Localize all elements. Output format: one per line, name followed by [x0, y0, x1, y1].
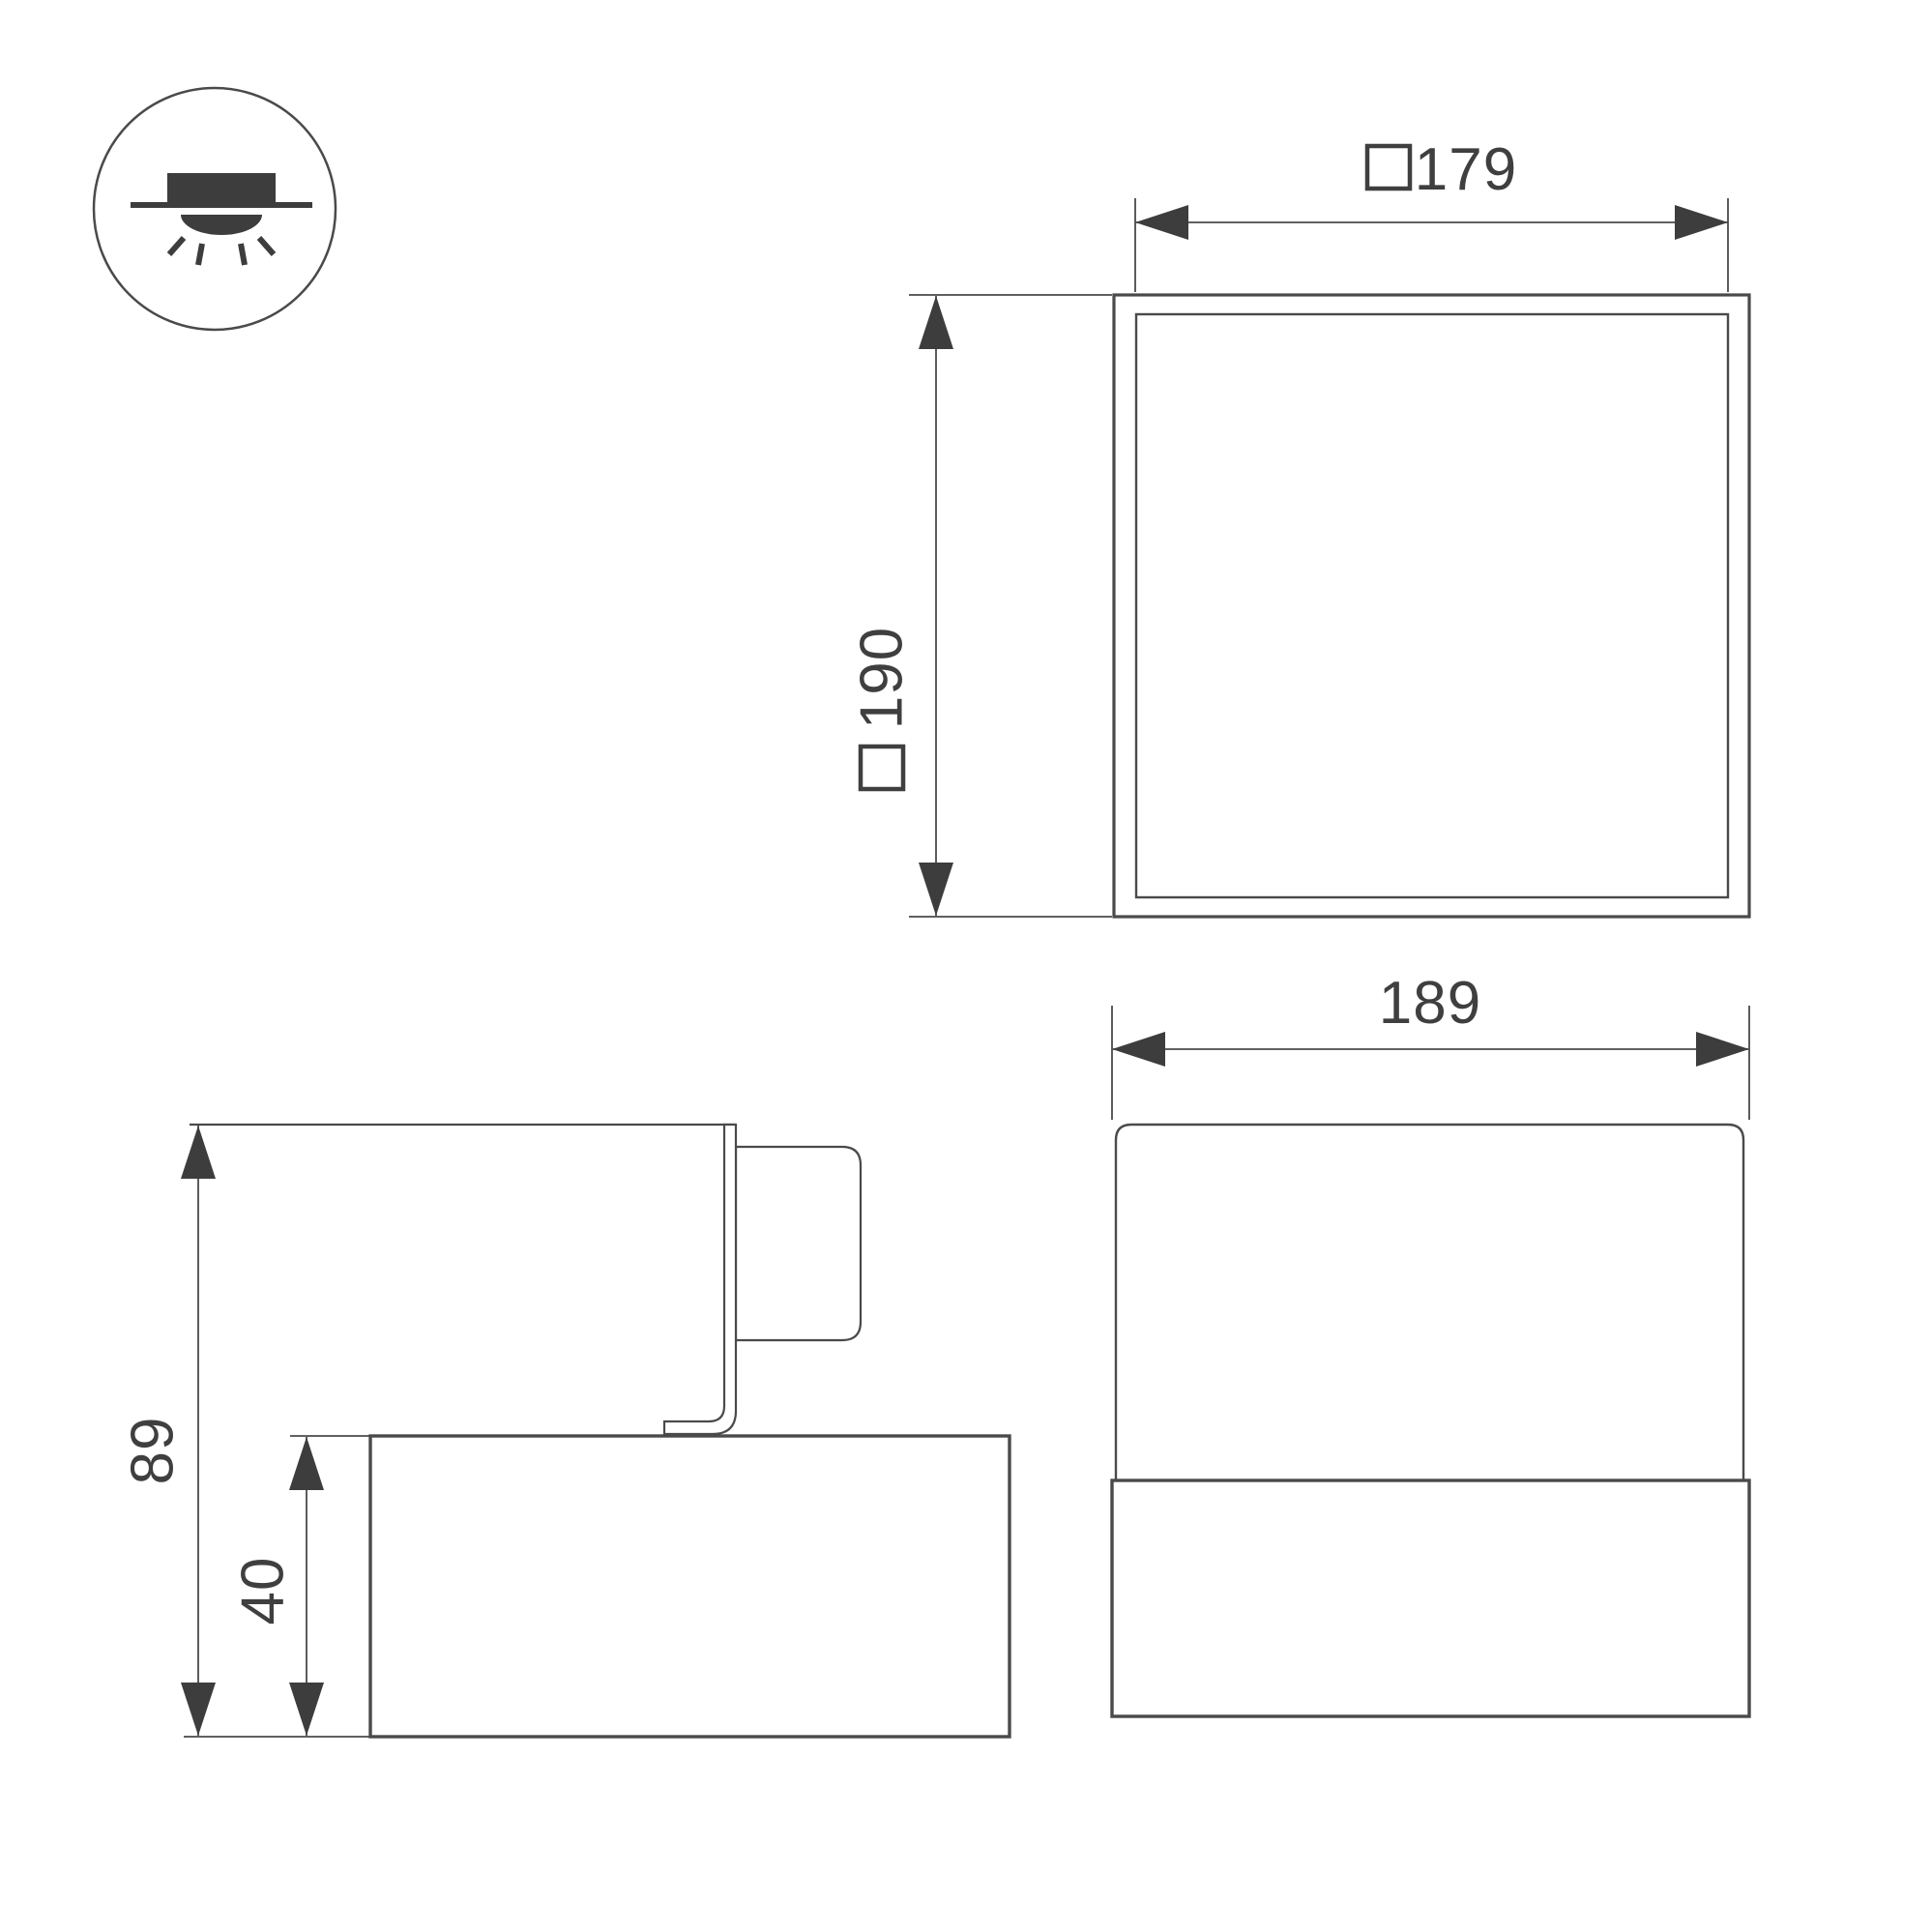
dimension-total-height: 89: [120, 1126, 217, 1736]
arrowhead-up-icon: [181, 1126, 216, 1179]
dimension-value: 179: [1415, 136, 1517, 203]
icon-ceiling-line: [131, 202, 312, 208]
technical-drawing-page: 179 190 189: [0, 0, 1932, 1932]
mount-type-icon: [94, 88, 336, 330]
icon-light-ray: [169, 238, 184, 254]
dimension-width: 189: [1112, 970, 1749, 1120]
icon-light-ray: [198, 244, 202, 265]
icon-lamp-housing: [167, 173, 276, 203]
arrowhead-down-icon: [919, 863, 953, 916]
icon-light-rays: [169, 238, 274, 265]
square-dimension-icon: [861, 746, 903, 789]
arrowhead-up-icon: [919, 296, 953, 349]
arrowhead-up-icon: [289, 1437, 324, 1490]
dimension-base-height: 40: [230, 1437, 325, 1736]
dimension-inner-width: 179: [1135, 136, 1728, 292]
plan-outer-frame: [1114, 295, 1749, 917]
arrowhead-down-icon: [181, 1683, 216, 1736]
plan-view: 179 190: [849, 136, 1750, 917]
side-view: 89 40: [120, 1125, 1010, 1737]
plan-inner-frame: [1136, 314, 1728, 897]
side-body-outline: [370, 1436, 1010, 1737]
front-diffuser-outline: [1116, 1125, 1743, 1482]
icon-circle-outline: [94, 88, 336, 330]
arrowhead-right-icon: [1696, 1032, 1749, 1067]
dimension-value: 89: [120, 1417, 187, 1485]
icon-light-ray: [241, 244, 245, 265]
square-dimension-icon: [1367, 146, 1410, 189]
front-view: 189: [1112, 970, 1749, 1716]
icon-light-dome: [181, 215, 262, 235]
dimension-value: 40: [230, 1557, 297, 1625]
dimension-value: 189: [1379, 970, 1481, 1037]
icon-light-ray: [259, 238, 274, 254]
arrowhead-left-icon: [1135, 205, 1188, 240]
luminaire-dimension-drawing: 179 190 189: [0, 0, 1932, 1932]
dimension-outer-height: 190: [849, 295, 1113, 917]
side-mount-clip-outline: [736, 1147, 861, 1340]
front-base-outline: [1112, 1480, 1749, 1716]
arrowhead-right-icon: [1675, 205, 1728, 240]
arrowhead-down-icon: [289, 1683, 324, 1736]
side-bracket-profile: [664, 1125, 736, 1434]
dimension-value: 190: [849, 627, 916, 729]
arrowhead-left-icon: [1112, 1032, 1165, 1067]
